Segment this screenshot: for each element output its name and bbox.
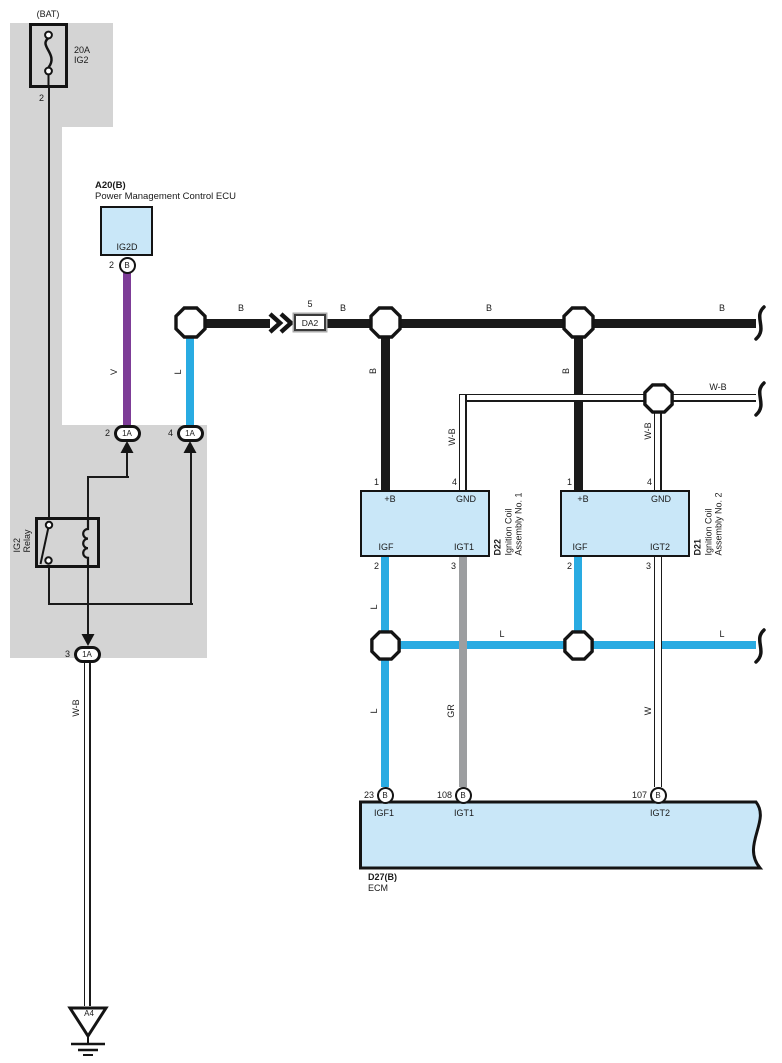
oval-2-no: 2 [105, 428, 110, 438]
ecm-name: ECM [368, 883, 388, 893]
coil2-pin-bl-label: IGF [573, 542, 588, 552]
wire-label-wb: W-B [643, 422, 653, 439]
coil1-pin-tl-label: +B [384, 494, 395, 504]
wire-fuse-to-relay [48, 86, 50, 518]
coil1-label: D22 Ignition Coil Assembly No. 1 [492, 492, 524, 555]
wire-b-drop-coil2 [574, 327, 583, 490]
wire-label-b: B [561, 368, 571, 374]
bus-wb [459, 394, 756, 402]
coil2-code: D21 [692, 492, 703, 555]
wire-coil-riser-v [87, 477, 89, 518]
oval-3-no: 3 [65, 649, 70, 659]
wire-label-b: B [238, 303, 244, 313]
wire-switch-across [48, 603, 193, 605]
coil2-pin-tl-label: +B [577, 494, 588, 504]
wire-coil-riser-h [87, 476, 129, 478]
coil1-name2: Assembly No. 1 [513, 492, 524, 555]
ground-code: A4 [84, 1009, 94, 1019]
ecm-pin-no: 23 [364, 790, 374, 800]
relay-label-line1: IG2 [12, 529, 22, 552]
wiring-diagram: (BAT) 20A IG2 2 A20(B) Power Management … [0, 0, 782, 1063]
da2-connector: DA2 [294, 314, 326, 331]
wire-label-gr: GR [446, 704, 456, 718]
junction-octagon [370, 630, 401, 661]
coil2-pin-br-no: 3 [646, 561, 651, 571]
wire-label-wb: W-B [71, 699, 81, 716]
oval-connector-2-1a: 1A [114, 425, 141, 442]
coil1-pin-br-label: IGT1 [454, 542, 474, 552]
fuse-name: IG2 [74, 55, 89, 65]
fuse-amps: 20A [74, 45, 90, 55]
pmc-pin-no: 2 [109, 260, 114, 270]
ecm-pin-no: 108 [437, 790, 452, 800]
oval-4-no: 4 [168, 428, 173, 438]
coil2-pin-tl-no: 1 [567, 477, 572, 487]
ecm-pin-connector: B [455, 787, 472, 804]
ecm-pin-connector: B [650, 787, 667, 804]
wire-b-drop-coil1 [381, 327, 390, 490]
da2-pin-no: 5 [307, 299, 312, 309]
coil2-pin-bl-no: 2 [567, 561, 572, 571]
wire-wb-to-ground [84, 661, 91, 1006]
coil1-code: D22 [492, 492, 503, 555]
wire-label-b: B [368, 368, 378, 374]
coil2-label: D21 Ignition Coil Assembly No. 2 [692, 492, 724, 555]
pmc-pin-connector: B [119, 257, 136, 274]
wire-relay-coil-to-gnd [87, 566, 89, 634]
junction-octagon [563, 630, 594, 661]
ecm-pin-label-igt1: IGT1 [454, 808, 474, 818]
ecm-pin-no: 107 [632, 790, 647, 800]
relay-symbol-icon [35, 517, 100, 568]
ecm-code: D27(B) [368, 872, 397, 882]
wire-wb-gnd-coil1 [459, 395, 467, 490]
wire-label-wb: W-B [709, 382, 726, 392]
bus-b-left [200, 319, 270, 328]
ecm-pin-connector: B [377, 787, 394, 804]
wire-break-icon [751, 305, 769, 341]
wire-label-v: V [109, 369, 119, 375]
wire-l-to-pin4 [186, 334, 194, 425]
junction-octagon [174, 306, 207, 339]
coil2-pin-br-label: IGT2 [650, 542, 670, 552]
junction-octagon [369, 306, 402, 339]
coil1-pin-bl-label: IGF [379, 542, 394, 552]
coil1-pin-tr-label: GND [456, 494, 476, 504]
ecm-pin-label-igf1: IGF1 [374, 808, 394, 818]
da2-code: DA2 [302, 318, 319, 328]
fuse-pin-no: 2 [39, 93, 44, 103]
pmc-terminal-label: IG2D [116, 242, 137, 252]
coil2-name2: Assembly No. 2 [713, 492, 724, 555]
wire-gr-igt1 [459, 557, 467, 787]
wire-label-l: L [173, 369, 183, 374]
arrow-up-icon [182, 441, 198, 454]
wire-break-icon [751, 381, 769, 417]
wire-wb-gnd-coil2 [654, 410, 662, 490]
wire-label-b: B [340, 303, 346, 313]
ecm-pin-label-igt2: IGT2 [650, 808, 670, 818]
wire-l-to-ecm [381, 648, 389, 787]
arrow-down-icon [80, 633, 96, 646]
wire-label-l: L [369, 708, 379, 713]
coil1-pin-tr-no: 4 [452, 477, 457, 487]
coil1-pin-tl-no: 1 [374, 477, 379, 487]
pmc-code: A20(B) [95, 180, 126, 192]
coil1-name1: Ignition Coil [503, 492, 514, 555]
junction-octagon [643, 383, 674, 414]
wire-label-l: L [719, 629, 724, 639]
wire-label-wb: W-B [447, 428, 457, 445]
wire-w-igt2 [654, 557, 662, 787]
junction-octagon [562, 306, 595, 339]
coil2-pin-tr-no: 4 [647, 477, 652, 487]
ecm-box [358, 799, 774, 871]
oval-connector-4-1a: 1A [177, 425, 204, 442]
wire-to-pin2-arrow [126, 452, 128, 478]
pmc-name: Power Management Control ECU [95, 191, 236, 203]
wire-break-icon [751, 628, 769, 664]
arrow-up-icon [119, 441, 135, 454]
wire-v-purple [123, 272, 131, 425]
bat-label: (BAT) [37, 9, 60, 19]
fuse-icon [29, 23, 68, 88]
wire-switch-down [48, 566, 50, 605]
oval-connector-3-1a: 1A [74, 646, 101, 663]
chevron-right-icon [268, 312, 296, 334]
wire-label-l: L [369, 604, 379, 609]
wire-label-w: W [643, 707, 653, 716]
wire-label-b: B [719, 303, 725, 313]
coil2-name1: Ignition Coil [703, 492, 714, 555]
coil1-pin-bl-no: 2 [374, 561, 379, 571]
relay-label-line2: Relay [22, 529, 32, 552]
wire-label-l: L [499, 629, 504, 639]
coil2-pin-tr-label: GND [651, 494, 671, 504]
wire-to-pin4-arrow [190, 452, 192, 605]
shade-area-strip [10, 127, 62, 425]
wire-label-b: B [486, 303, 492, 313]
relay-label: IG2 Relay [12, 529, 32, 552]
coil1-pin-br-no: 3 [451, 561, 456, 571]
